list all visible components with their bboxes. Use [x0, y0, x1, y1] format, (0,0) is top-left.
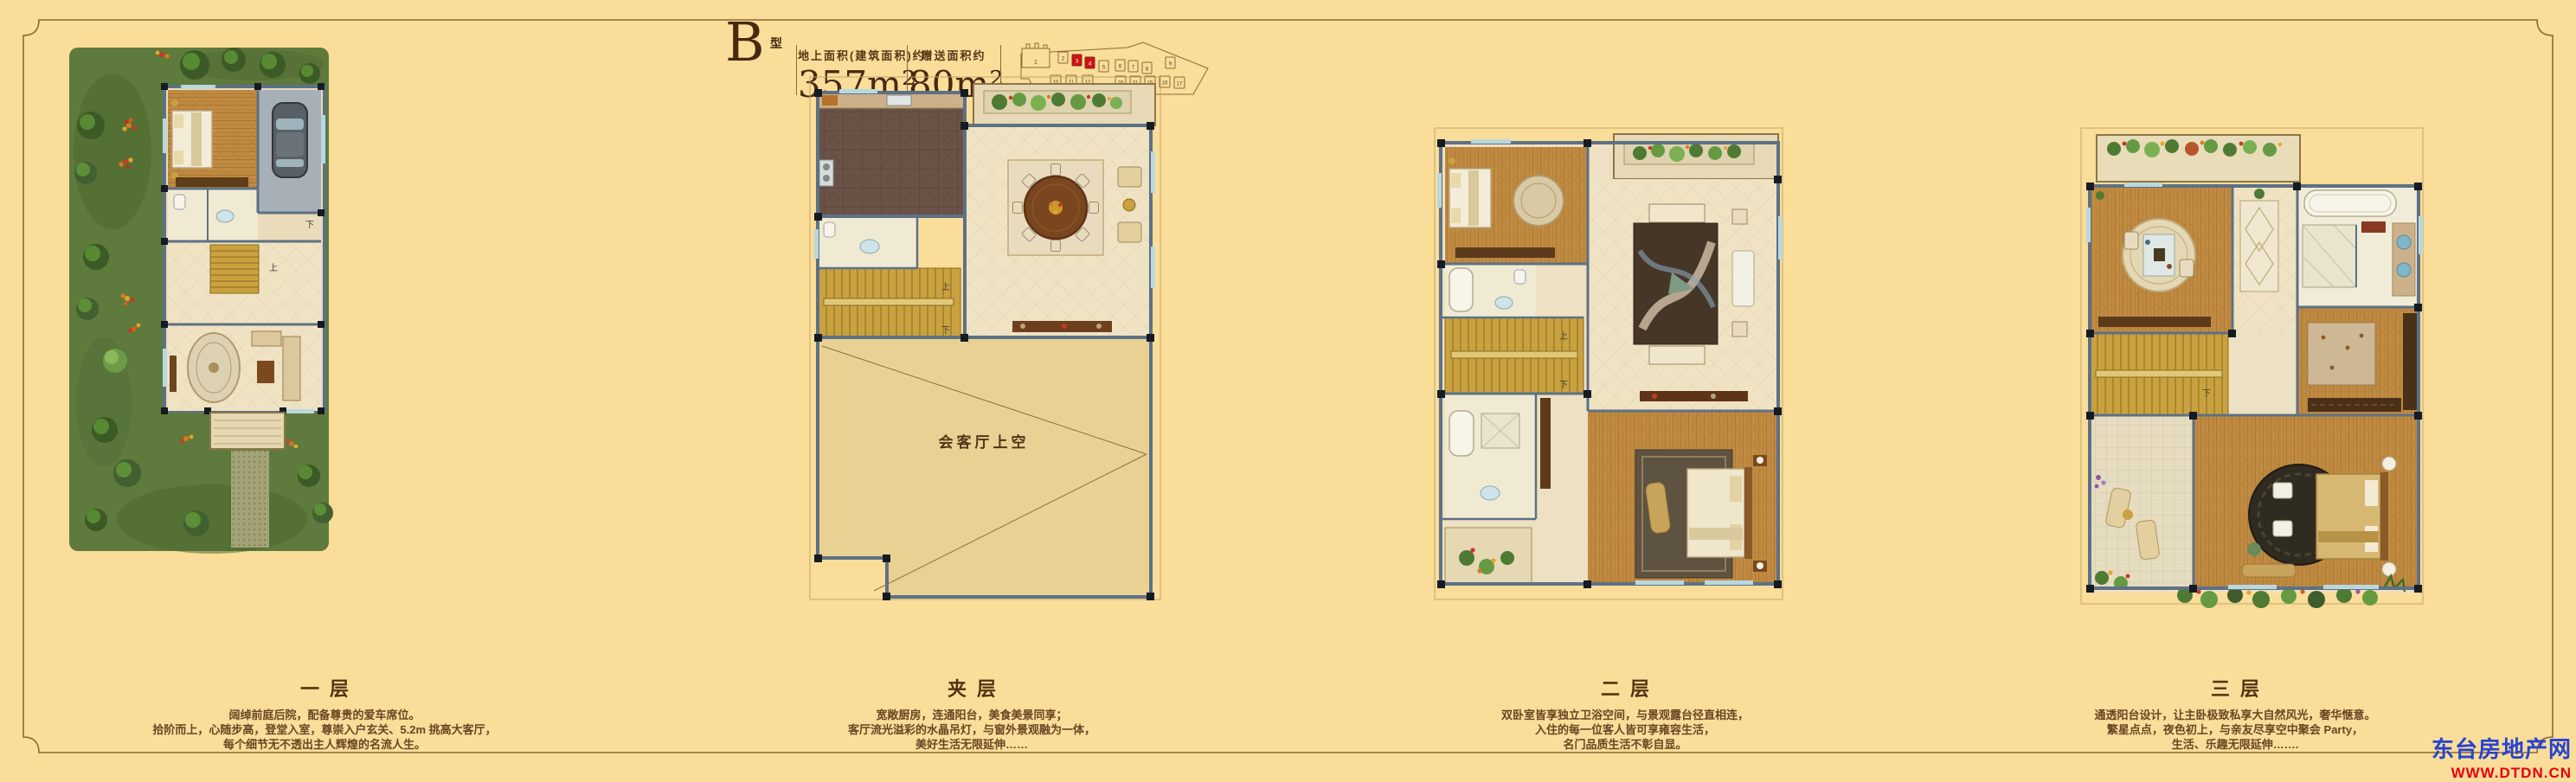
cabinet — [2361, 221, 2386, 233]
wardrobe — [2403, 313, 2417, 410]
armchair — [1118, 167, 1141, 187]
bonus-area-label: 赠送面积约 — [909, 47, 999, 63]
coffee-table — [257, 361, 274, 383]
floor-label-mezzanine: 夹层 宽敞厨房，连通阳台，美食美景同享； 客厅流光溢彩的水晶吊灯，与窗外景观融为… — [669, 674, 1275, 752]
decor-plate — [2247, 542, 2261, 556]
watermark-site-name: 东台房地产网 — [2414, 732, 2572, 764]
basin — [1481, 486, 1500, 500]
site-unit-6: 6 — [1115, 60, 1125, 71]
chaise — [1732, 251, 1754, 306]
master-bathroom — [2297, 186, 2419, 307]
basin — [216, 210, 234, 222]
svg-text:6: 6 — [1119, 64, 1122, 70]
loveseat — [252, 331, 281, 346]
site-unit-2: 2 — [1058, 52, 1068, 63]
floor-desc-line: 客厅流光溢彩的水晶吊灯，与窗外景观融为一体， — [669, 722, 1275, 737]
dining-table — [1025, 176, 1087, 239]
toilet — [1514, 270, 1526, 284]
chair — [2180, 260, 2194, 277]
vanity — [2393, 223, 2415, 296]
side-table — [2123, 510, 2133, 520]
unit-type-suffix: 型 — [770, 35, 782, 52]
svg-text:1: 1 — [1034, 60, 1037, 66]
side-table — [1123, 199, 1135, 211]
open-terrace — [2090, 415, 2194, 590]
watermark: 东台房地产网 WWW.DTDN.CN — [2414, 732, 2572, 782]
svg-text:2: 2 — [1062, 56, 1065, 62]
living-room-void: 会客厅上空 — [818, 337, 1151, 597]
stairs-up-label: 上 — [1559, 331, 1568, 342]
floor-desc-line: 宽敞厨房，连通阳台，美食美景同享； — [669, 708, 1275, 722]
nightstand — [2382, 562, 2396, 576]
armchair — [2273, 483, 2292, 498]
unit-type-letter: B — [725, 16, 765, 69]
kitchen — [818, 93, 965, 216]
armchair — [1118, 222, 1141, 242]
stairs — [2090, 333, 2228, 415]
floor-title-third: 三层 — [1943, 674, 2538, 702]
floor-desc-line: 阔绰前庭后院，配备尊贵的爱车席位。 — [22, 708, 627, 722]
stairs-down-label: 下 — [305, 221, 314, 230]
fireplace — [170, 356, 177, 392]
side-table — [1732, 322, 1747, 337]
svg-text:17: 17 — [1177, 82, 1183, 87]
stairs-up-label: 上 — [941, 282, 950, 292]
bookcase — [2098, 317, 2211, 327]
flower-bed — [1445, 528, 1532, 584]
stairs-down-label: 下 — [1559, 381, 1568, 390]
hall-rug — [2240, 201, 2278, 292]
bathtub — [1449, 268, 1473, 311]
floor-desc-line: 每个细节无不透出主人辉煌的名流人生。 — [22, 737, 627, 752]
plant — [2096, 191, 2104, 200]
svg-text:9: 9 — [1169, 61, 1172, 67]
car — [273, 103, 307, 177]
headboard — [2380, 472, 2388, 561]
toilet — [824, 222, 835, 237]
svg-text:7: 7 — [1132, 65, 1135, 71]
floor-plan-first-floor: 上 下 — [65, 39, 333, 558]
svg-text:3: 3 — [1076, 59, 1079, 65]
site-unit-5: 5 — [1099, 61, 1108, 72]
svg-text:5: 5 — [1102, 65, 1106, 71]
site-unit-3-highlighted: 3 — [1072, 54, 1082, 66]
svg-text:8: 8 — [1146, 67, 1149, 73]
stairs-down-label: 下 — [2202, 389, 2211, 399]
toilet — [174, 195, 185, 209]
balcony — [973, 84, 1155, 125]
floor-desc-line: 入住的每一位客人皆可享雍容生活， — [1322, 722, 1928, 737]
floor-desc-line: 双卧室皆享独立卫浴空间，与景观露台径直相连， — [1322, 708, 1928, 722]
basin — [860, 240, 879, 253]
site-unit-4-highlighted: 4 — [1085, 57, 1095, 68]
floor-desc-line: 通透阳台设计，让主卧极致私享大自然风光，奢华惬意。 — [1932, 708, 2538, 722]
bathroom-lower — [1445, 394, 1536, 519]
floor-title-second: 二层 — [1333, 674, 1928, 702]
stairs-up-label: 上 — [269, 263, 278, 273]
site-unit-17: 17 — [1174, 77, 1185, 88]
floor-desc-line: 名门品质生活不彰自显。 — [1322, 737, 1928, 752]
master-bedroom — [1588, 411, 1778, 584]
master-bedroom — [2194, 415, 2419, 588]
floor-plan-mezzanine: 上 下 会客厅上空 — [805, 74, 1168, 606]
bathtub — [1449, 411, 1474, 456]
family-room-rug — [1634, 223, 1718, 344]
dressing-rug — [2308, 323, 2375, 385]
nightstand — [2382, 457, 2396, 471]
basin — [1495, 297, 1513, 309]
headboard — [1744, 467, 1752, 559]
stairs — [210, 245, 259, 293]
roof-terrace-top — [2097, 135, 2300, 182]
header-divider-1 — [796, 45, 797, 95]
guest-bedroom — [1445, 147, 1588, 264]
void-label: 会客厅上空 — [939, 433, 1030, 451]
site-unit-1: 1 — [1022, 43, 1050, 67]
site-unit-8: 8 — [1142, 62, 1152, 74]
sofa — [283, 337, 300, 401]
floor-plan-third-floor: 下 — [2072, 121, 2431, 610]
sofa — [1649, 204, 1705, 222]
floor-plan-second-floor: 上 下 — [1428, 121, 1791, 606]
dressing-area — [2297, 307, 2419, 415]
floor-label-first: 一层 阔绰前庭后院，配备尊贵的爱车席位。 拾阶而上，心随步高，登堂入室，尊崇入户… — [22, 674, 627, 752]
svg-text:4: 4 — [1089, 61, 1092, 67]
bathroom-upper — [1445, 264, 1536, 317]
floor-label-second: 二层 双卧室皆享独立卫浴空间，与景观露台径直相连， 入住的每一位客人皆可享雍容生… — [1322, 674, 1928, 752]
stairs — [818, 268, 960, 337]
floor-title-mezzanine: 夹层 — [679, 674, 1275, 702]
family-room — [1588, 179, 1778, 411]
garden-path — [231, 451, 269, 548]
balcony — [1614, 134, 1778, 179]
dining-room — [965, 125, 1151, 337]
above-ground-area-label: 地上面积(建筑面积)约 — [798, 47, 905, 63]
stairs-down-label: 下 — [941, 326, 950, 336]
closet — [1540, 398, 1551, 489]
powder-room — [818, 216, 917, 268]
floor-title-first: 一层 — [32, 674, 627, 702]
site-unit-9: 9 — [1166, 57, 1175, 68]
kitchen-appliance — [822, 95, 838, 106]
bench — [2242, 564, 2296, 577]
site-unit-7: 7 — [1128, 61, 1138, 72]
side-table — [1732, 209, 1747, 224]
plant — [2254, 189, 2264, 199]
entry-porch — [210, 413, 285, 449]
bedroom-dresser — [176, 177, 248, 187]
floor-desc-line: 拾阶而上，心随步高，登堂入室，尊崇入户玄关、5.2m 挑高大客厅， — [22, 722, 627, 737]
tea-room — [2090, 186, 2232, 333]
sofa — [1649, 346, 1705, 364]
hallway — [2232, 186, 2297, 333]
armchair — [2273, 521, 2292, 536]
wardrobe — [1455, 247, 1555, 258]
watermark-site-url: WWW.DTDN.CN — [2414, 765, 2572, 782]
chair — [2124, 232, 2138, 249]
floorplan-poster: { "header": { "type_letter": "B", "type_… — [0, 0, 2576, 779]
floor-desc-line: 美好生活无限延伸…… — [669, 737, 1275, 752]
kitchen-sink — [887, 95, 911, 106]
